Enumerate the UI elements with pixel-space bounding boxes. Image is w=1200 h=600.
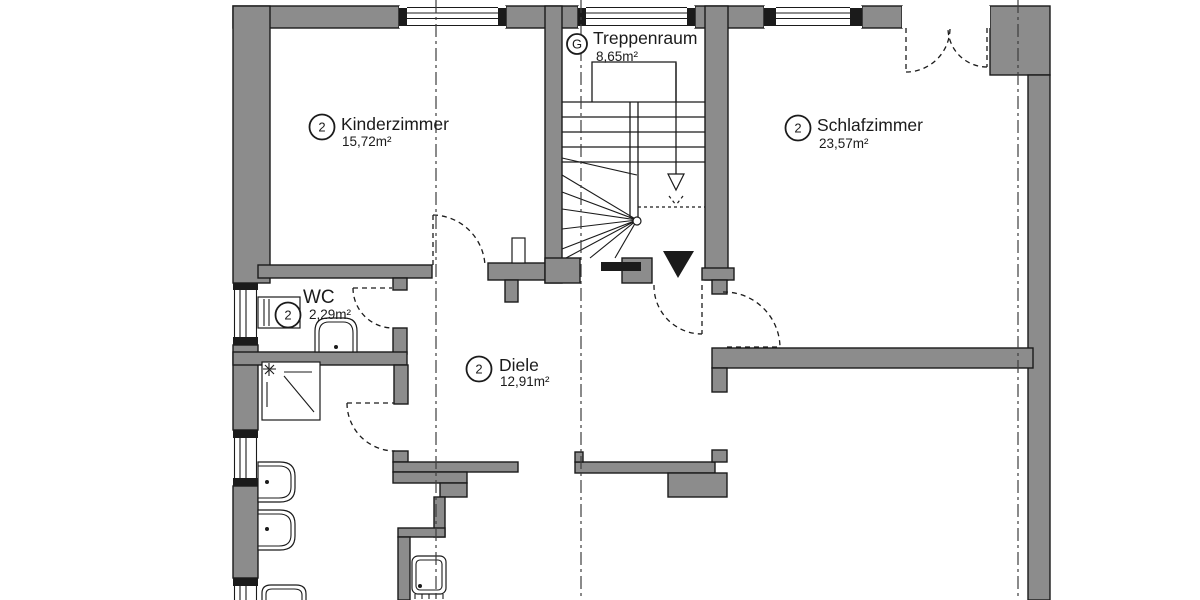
wall-stub-g [712,450,727,462]
floor-plan-page: G Treppenraum 8,65m² 2 Kinderzimmer 15,7… [0,0,1200,600]
stair-arrow-dashed [669,196,683,205]
wall-top-d [862,6,902,28]
bathtub-fixture [262,585,306,600]
door-wc [353,288,393,328]
shower-fixture [262,362,320,420]
door-schlafzimmer [723,292,781,348]
floor-plan-drawing: G Treppenraum 8,65m² 2 Kinderzimmer 15,7… [0,0,1200,600]
entrance-arrow-icon [663,251,694,278]
room-area: 23,57m² [819,136,869,151]
window-left-3 [233,578,258,600]
wall-stair-right [705,6,728,280]
window-left-2 [233,430,258,486]
stair-treads [562,102,705,162]
room-area: 12,91m² [500,374,550,389]
door-entrance [654,285,702,334]
toilet-fixture [315,318,357,352]
room-name: Diele [499,355,539,375]
stair-landing-outline [592,62,676,102]
room-name: Kinderzimmer [341,114,449,134]
room-label-schlafzimmer: 2 Schlafzimmer 23,57m² [786,115,924,151]
wall-stub-schlaf-door-bottom [712,368,727,392]
fixtures [258,297,446,600]
wall-stair-left [545,6,562,283]
room-label-diele: 2 Diele 12,91m² [467,355,551,389]
wall-block-b [440,483,467,497]
wall-stub-bath-door [393,451,408,462]
window-schlafzimmer [764,6,862,28]
kitchen-sink-fixture [412,556,446,599]
room-area: 15,72m² [342,134,392,149]
room-label-kinderzimmer: 2 Kinderzimmer 15,72m² [310,114,450,149]
wall-thin-partition [512,238,525,263]
stair-threshold [601,262,641,271]
room-area: 2,29m² [309,307,352,322]
washbasin-fixture [258,462,295,502]
doors [347,28,987,451]
stair-stringer [630,102,638,218]
wall-flange [702,268,734,280]
wall-bath-right [394,365,408,404]
wall-kitchen-left [398,537,410,600]
wall-block-c [668,473,727,497]
wall-schlafzimmer-bottom [712,348,1033,368]
wall-kitchen-band [398,528,445,537]
opening-balcony [902,6,990,28]
wall-kinderzimmer-bottom [258,265,432,278]
wall-right [1028,75,1050,600]
room-badge-text: 2 [318,120,325,135]
wall-stair-bottom-a [545,258,580,283]
window-stair [578,6,695,28]
washbasin-fixture [258,510,295,550]
wall-diele-bottom-right [575,462,715,473]
room-labels: G Treppenraum 8,65m² 2 Kinderzimmer 15,7… [276,28,924,389]
room-name: WC [303,287,335,308]
stair-winders [562,158,637,258]
wall-corner-ne [990,6,1050,75]
walls [233,6,1050,600]
wall-step [575,452,583,462]
room-badge-text: 2 [284,308,291,323]
window-left-1 [233,283,258,345]
room-area: 8,65m² [596,49,639,64]
windows [233,6,990,600]
staircase [562,62,705,271]
room-label-wc: WC 2 2,29m² [276,287,352,328]
door-bath [347,403,395,451]
room-badge-text: 2 [475,362,482,377]
wall-left-upper [233,6,270,283]
wall-stub-wc-top [393,278,407,290]
wall-left-pier2 [233,486,258,578]
door-balcony-french [906,28,987,72]
wall-block-a [393,472,467,483]
wall-wc-right [393,328,407,354]
wall-top-b [506,6,578,28]
room-name: Treppenraum [593,28,697,48]
stair-direction-arrow-icon [668,174,684,190]
room-label-treppenraum: G Treppenraum 8,65m² [567,28,697,64]
wall-stub-diele [505,280,518,302]
wall-diele-bottom-left [393,462,518,472]
room-name: Schlafzimmer [817,115,923,135]
room-badge-text: 2 [794,121,801,136]
stair-newel-post [633,217,641,225]
window-top-1 [399,6,506,28]
door-kinderzimmer [433,215,485,266]
room-badge-text: G [572,37,582,52]
